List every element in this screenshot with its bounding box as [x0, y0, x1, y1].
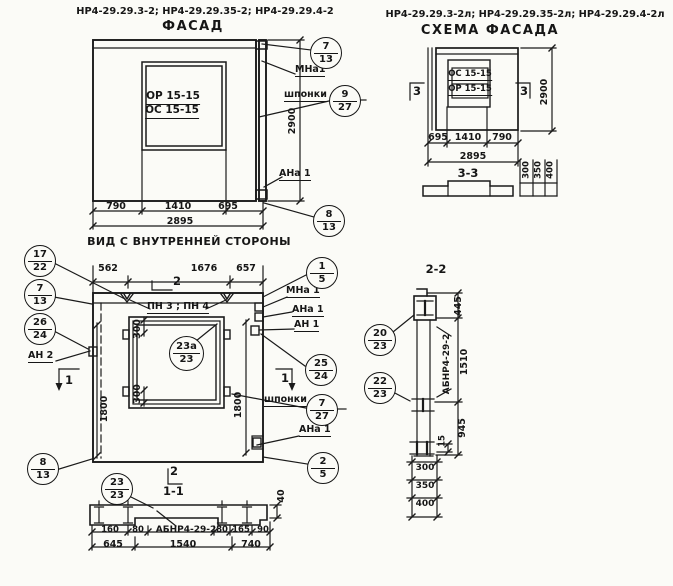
section-2-2-block-label: АБНР4-29-2 — [443, 334, 453, 394]
inner-dim-300-bottom: 300 — [133, 384, 143, 404]
inner-label-mna1: МНа 1 — [286, 286, 320, 298]
facade-window-mark-bottom: ОС 15-15 — [145, 105, 199, 119]
section-1-1-dim-165: 165 — [232, 526, 250, 535]
facade-label-shponki: шпонки — [284, 90, 327, 102]
section-1-1-dim-645: 645 — [103, 540, 123, 550]
inner-label-an1: АН 1 — [294, 320, 319, 332]
schema-window-mark-top: ОС 15-15 — [448, 70, 492, 81]
section-1-1-dim-740: 740 — [241, 540, 261, 550]
section-2-2-dim-445: 445 — [454, 296, 464, 316]
inner-callout-17-22: 17 22 — [24, 245, 56, 277]
inner-dim-300-top: 300 — [133, 319, 143, 339]
facade-dim-695: 695 — [218, 202, 238, 212]
section-1-1-block-label: АБНР4-29-2 — [156, 526, 216, 536]
section-2-2-dim-350: 350 — [416, 482, 435, 492]
section-1-1-callout-23-23: 23 23 — [101, 473, 133, 505]
facade-dim-2900: 2900 — [288, 108, 298, 134]
inner-section-mark-1-left: 1 — [65, 374, 73, 387]
facade-title: НР4-29.29.3-2; НР4-29.29.35-2; НР4-29.29… — [76, 7, 334, 18]
section-2-2-title: 2-2 — [426, 263, 447, 276]
facade-dim-790: 790 — [106, 202, 126, 212]
inner-section-mark-2-top: 2 — [173, 275, 181, 288]
section-1-1-dim-160: 160 — [101, 526, 119, 535]
section-1-1-dim-90: 90 — [257, 526, 269, 535]
section-2-2-callout-22-23: 22 23 — [364, 372, 396, 404]
inner-callout-8-13: 8 13 — [27, 453, 59, 485]
section-3-3-title: 3-3 — [458, 167, 479, 180]
inner-label-an2: АН 2 — [28, 351, 53, 363]
section-1-1-dim-40: 40 — [277, 489, 287, 502]
inner-dim-1800-right: 1800 — [234, 392, 244, 418]
schema-view-name: СХЕМА ФАСАДА — [421, 24, 559, 38]
section-3-3-dim-350: 350 — [534, 161, 543, 179]
section-1-1-title: 1-1 — [163, 485, 184, 498]
inner-label-pn: ПН 3 ; ПН 4 — [147, 302, 209, 314]
inner-view-title: ВИД С ВНУТРЕННЕЙ СТОРОНЫ — [87, 236, 291, 248]
facade-window-mark-top: ОР 15-15 — [146, 91, 200, 105]
section-3-3-dim-300: 300 — [522, 161, 531, 179]
section-1-1-dim-80-right: 80 — [216, 526, 228, 535]
schema-title: НР4-29.29.3-2л; НР4-29.29.35-2л; НР4-29.… — [385, 10, 664, 21]
facade-dim-1410: 1410 — [165, 202, 191, 212]
section-1-1-dim-1540: 1540 — [170, 540, 196, 550]
schema-window-mark-bottom: ОР 15-15 — [448, 85, 492, 96]
section-1-1-dim-80-left: 80 — [132, 526, 144, 535]
inner-section-mark-1-right: 1 — [281, 372, 289, 385]
schema-dim-2900: 2900 — [540, 79, 550, 105]
inner-callout-23a-23: 23а 23 — [169, 336, 204, 371]
inner-label-ana1-bottom: АНа 1 — [299, 425, 331, 437]
schema-dim-1410: 1410 — [455, 133, 481, 143]
facade-callout-7-13: 7 13 — [310, 37, 342, 69]
section-1-1-mark-2: 2 — [170, 465, 178, 478]
facade-callout-shponki: 9 27 — [329, 85, 361, 117]
inner-callout-shponki: 7 27 — [306, 394, 338, 426]
inner-dim-562: 562 — [98, 264, 118, 274]
inner-callout-7-13: 7 13 — [24, 279, 56, 311]
inner-callout-26-24: 26 24 — [24, 313, 56, 345]
section-2-2-dim-300: 300 — [416, 464, 435, 474]
section-2-2-dim-400: 400 — [416, 500, 435, 510]
inner-dim-1800-left: 1800 — [100, 396, 110, 422]
facade-label-ana1: АНа 1 — [279, 169, 311, 181]
section-2-2-dim-15: 15 — [438, 435, 447, 447]
inner-dim-657: 657 — [236, 264, 256, 274]
inner-callout-25-24: 25 24 — [305, 354, 337, 386]
schema-dim-790: 790 — [492, 133, 512, 143]
facade-dim-2895: 2895 — [167, 217, 193, 227]
inner-label-ana1: АНа 1 — [292, 305, 324, 317]
inner-callout-2-5: 2 5 — [307, 452, 339, 484]
schema-dim-695: 695 — [428, 133, 448, 143]
schema-dim-2895: 2895 — [460, 152, 486, 162]
section-2-2-dim-945: 945 — [458, 418, 468, 438]
section-2-2-dim-1510: 1510 — [460, 349, 470, 375]
drawing-canvas: НР4-29.29.3-2; НР4-29.29.35-2; НР4-29.29… — [0, 0, 673, 586]
inner-dim-1676: 1676 — [191, 264, 217, 274]
inner-callout-1-5: 1 5 — [306, 257, 338, 289]
facade-callout-8-13: 8 13 — [313, 205, 345, 237]
inner-label-shponki: шпонки — [264, 395, 307, 407]
schema-section-mark-3-left: 3 — [413, 85, 421, 98]
section-2-2-callout-20-23: 20 23 — [364, 324, 396, 356]
schema-section-mark-3-right: 3 — [520, 85, 528, 98]
section-3-3-dim-400: 400 — [546, 161, 555, 179]
facade-view-name: ФАСАД — [162, 20, 224, 34]
